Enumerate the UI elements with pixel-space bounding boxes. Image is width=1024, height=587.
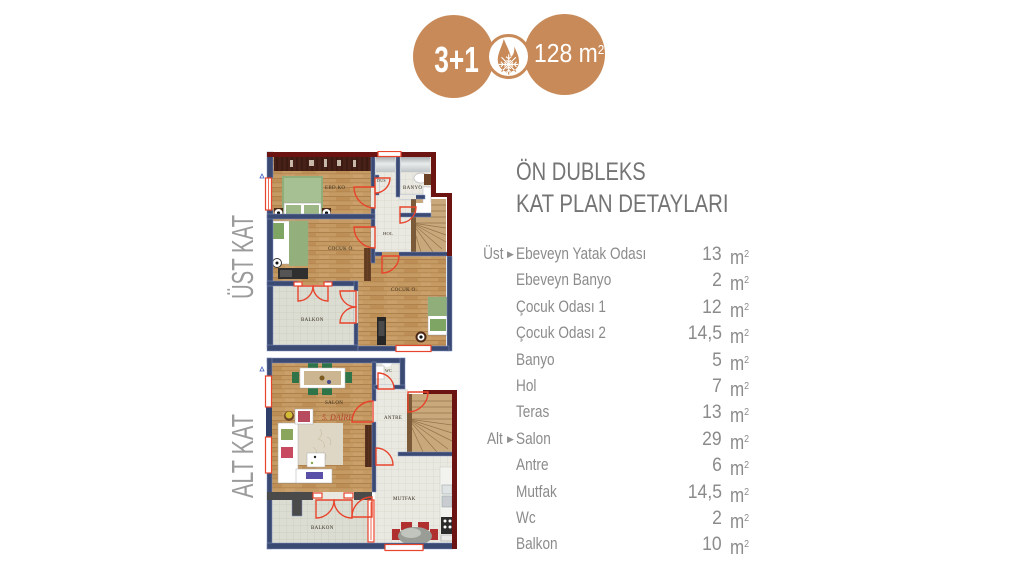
svg-text:COCUK O.: COCUK O. xyxy=(391,288,417,293)
svg-text:COCUK O.: COCUK O. xyxy=(328,247,354,252)
svg-text:ANTRE: ANTRE xyxy=(384,416,402,421)
svg-text:EBD.KO: EBD.KO xyxy=(325,186,345,191)
svg-text:BALKON: BALKON xyxy=(301,318,324,323)
svg-text:HOL: HOL xyxy=(383,231,393,236)
svg-text:WC: WC xyxy=(385,368,392,373)
svg-text:BALKON: BALKON xyxy=(311,526,334,531)
svg-text:SALON: SALON xyxy=(325,401,343,406)
svg-text:BANYO: BANYO xyxy=(403,186,422,191)
svg-text:DUS: DUS xyxy=(377,178,386,183)
svg-text:MUTFAK: MUTFAK xyxy=(393,497,416,502)
svg-text:5. DAİRE: 5. DAİRE xyxy=(322,413,353,422)
